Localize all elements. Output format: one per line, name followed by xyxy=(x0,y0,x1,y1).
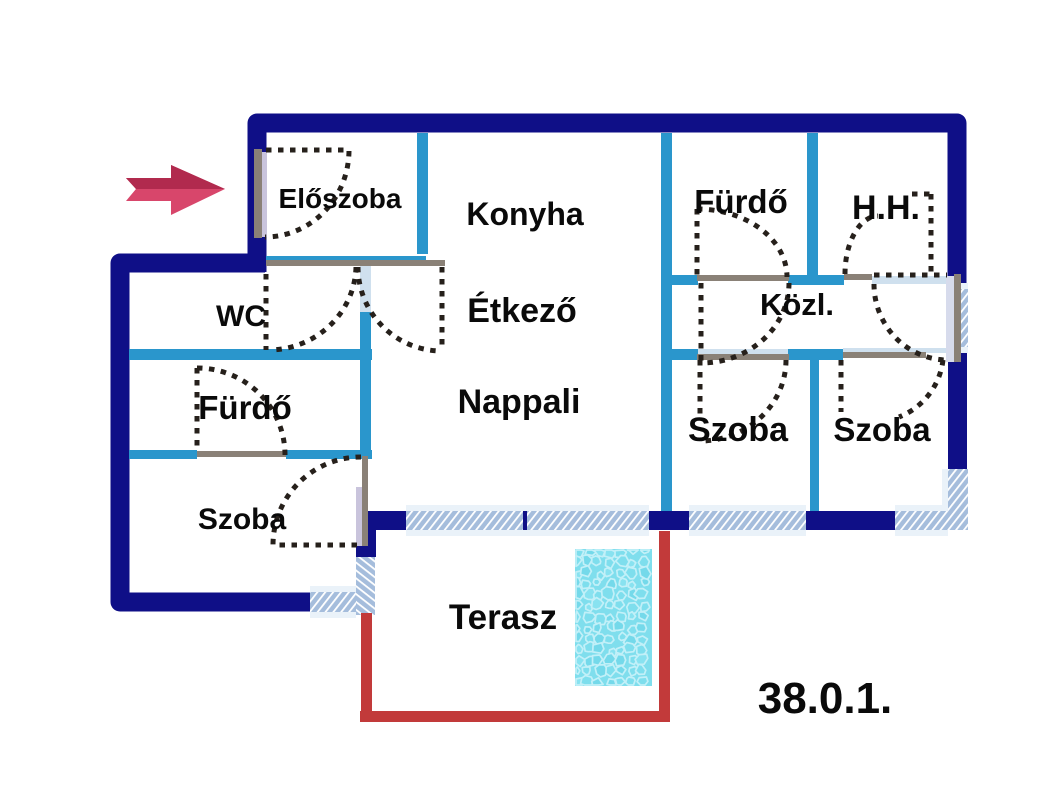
svg-text:Szoba: Szoba xyxy=(833,411,931,448)
svg-text:38.0.1.: 38.0.1. xyxy=(758,674,893,723)
svg-text:WC: WC xyxy=(216,300,266,333)
svg-text:Szoba: Szoba xyxy=(198,503,287,536)
svg-text:Étkező: Étkező xyxy=(467,292,577,330)
svg-text:Konyha: Konyha xyxy=(466,196,584,232)
svg-text:Előszoba: Előszoba xyxy=(279,183,402,214)
svg-text:Fürdő: Fürdő xyxy=(198,389,291,426)
svg-text:Terasz: Terasz xyxy=(449,598,557,637)
svg-text:H.H.: H.H. xyxy=(852,189,920,227)
svg-text:Szoba: Szoba xyxy=(688,411,789,449)
svg-text:Fürdő: Fürdő xyxy=(694,183,787,220)
svg-text:Közl.: Közl. xyxy=(760,287,834,322)
svg-text:Nappali: Nappali xyxy=(458,383,581,421)
